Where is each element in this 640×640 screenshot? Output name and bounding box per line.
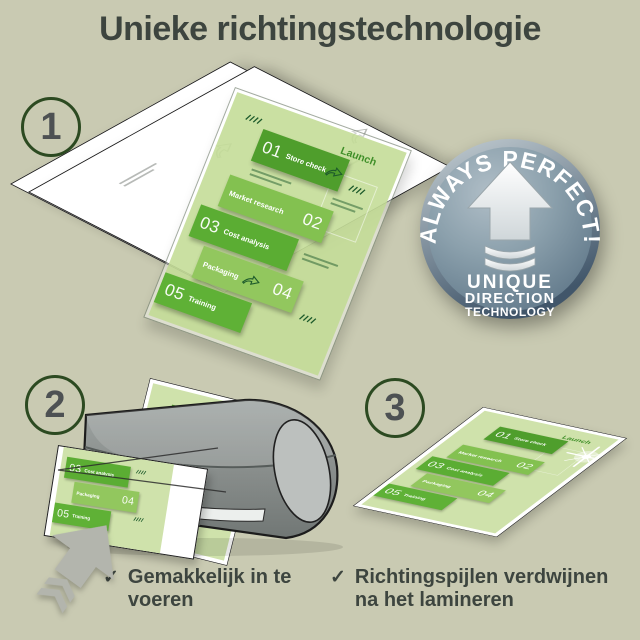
badge-line-technology: TECHNOLOGY — [465, 305, 555, 319]
block-number: 01 — [259, 138, 285, 163]
badge-line-unique: UNIQUE — [467, 272, 553, 293]
checklist-text: Richtingspijlen verdwijnen na het lamine… — [355, 566, 622, 611]
arrow-icon — [240, 271, 262, 290]
block-label: Market research — [457, 450, 504, 463]
step-1-label: 1 — [40, 106, 61, 149]
micro-text-lines — [301, 250, 340, 274]
checklist-item: ✓ Richtingspijlen verdwijnen na het lami… — [330, 566, 622, 611]
always-perfect-badge: ALWAYS PERFECT! UNIQUE DIRECTION TECHNOL… — [419, 138, 601, 320]
block-number: 05 — [162, 280, 188, 305]
block-label: Training — [187, 293, 218, 311]
block-number: 03 — [197, 213, 223, 238]
doc-block-01: 01 Store check — [483, 427, 568, 455]
direction-arrow-icon — [297, 312, 317, 325]
block-label: Packaging — [202, 259, 241, 280]
block-label: Training — [402, 493, 428, 501]
block-label: Cost analysis — [445, 466, 485, 477]
direction-arrow-icon — [243, 112, 263, 125]
checklist-text: Gemakkelijk in te voeren — [128, 566, 293, 611]
step-3-label: 3 — [384, 387, 405, 430]
laminator-infographic: Unieke richtingstechnologie 1 Launch — [0, 0, 640, 640]
checkmark-icon: ✓ — [330, 567, 346, 588]
block-number: 02 — [299, 209, 325, 234]
block-label: Store check — [285, 151, 328, 174]
step-3-number: 3 — [365, 378, 425, 438]
page-title: Unieke richtingstechnologie — [0, 10, 640, 49]
printed-text-lines — [116, 162, 164, 188]
block-number: 02 — [512, 461, 537, 472]
block-number: 04 — [473, 489, 498, 500]
block-number: 04 — [269, 279, 295, 304]
block-label: Market research — [228, 188, 285, 216]
direction-arrow-icon — [132, 516, 144, 523]
block-label: Packaging — [421, 479, 453, 488]
block-label: Cost analysis — [222, 226, 271, 251]
block-label: Store check — [513, 436, 549, 446]
